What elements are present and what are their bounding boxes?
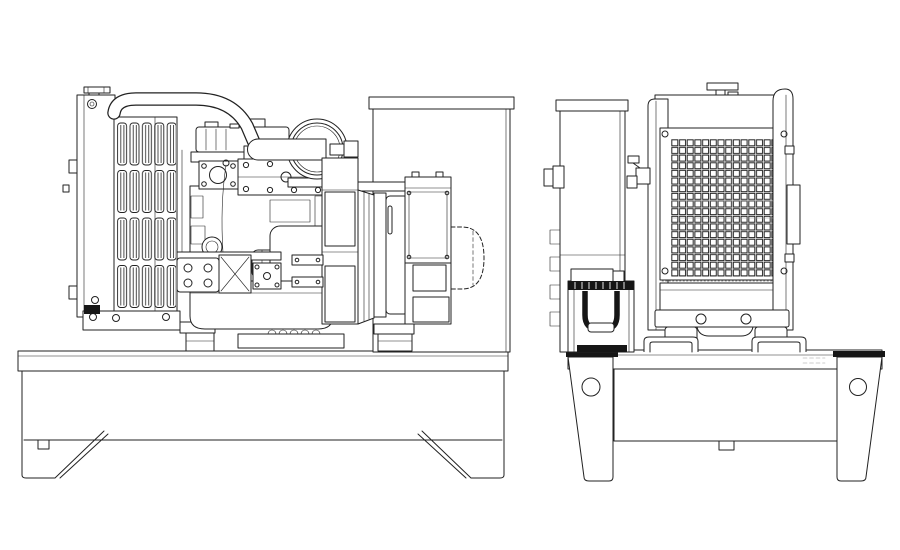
end-vent-upper: [413, 265, 446, 291]
left-mounting-leg: [568, 357, 613, 481]
base-frame-end: [566, 350, 885, 481]
frame-notch: [38, 440, 49, 449]
top-tank: [655, 95, 780, 128]
base-frame-side: [18, 351, 508, 478]
handle-grip: [588, 323, 614, 332]
alternator-vent-upper: [325, 192, 355, 246]
right-mounting-leg: [837, 357, 882, 481]
vibration-mount-right: [752, 337, 806, 352]
radiator-front: [627, 83, 800, 330]
battery-terminal: [613, 271, 624, 282]
engine-mounts-end: [644, 310, 806, 352]
generator-drawing: [0, 0, 900, 550]
drain-fitting: [636, 168, 650, 184]
drawing-canvas: [0, 0, 900, 550]
panel-connector: [553, 166, 564, 188]
bottom-tank: [660, 283, 773, 310]
alternator-terminal-box: [405, 177, 451, 263]
intake-pipe: [248, 139, 327, 160]
radiator-fin-slots: [116, 121, 176, 311]
end-vent-lower: [413, 297, 449, 322]
drain-cock: [84, 305, 100, 314]
outlet-fitting: [344, 141, 358, 157]
battery: [568, 269, 634, 352]
vibration-mount-left: [644, 337, 698, 352]
engine-foot: [186, 333, 214, 351]
mount-tray: [655, 310, 789, 327]
engine-sump: [697, 327, 753, 336]
end-view: [544, 83, 885, 481]
front-mount-bracket: [177, 258, 219, 292]
alternator-vent-lower: [325, 266, 355, 322]
alternator-foot: [378, 334, 412, 351]
radiator-grille-mesh: [671, 139, 773, 277]
side-view: [18, 87, 514, 478]
radiator-tank: [77, 95, 115, 317]
radiator-cap-front: [707, 83, 738, 90]
gear-cover-plate: [199, 161, 238, 189]
side-bracket: [787, 185, 800, 244]
